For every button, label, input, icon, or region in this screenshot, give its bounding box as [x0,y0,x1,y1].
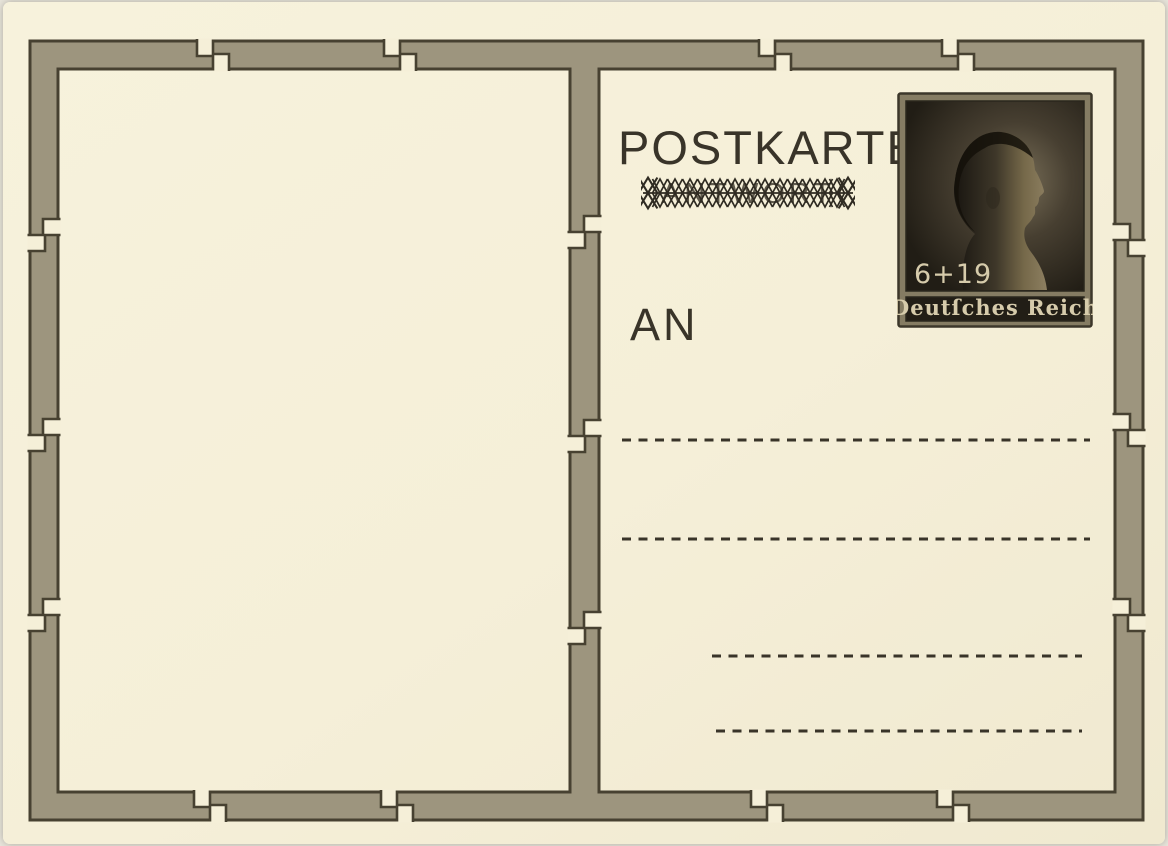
address-prefix-label: AN [630,299,699,351]
postcard-title: POSTKARTE [618,126,920,170]
scanned-postcard-page: POSTKARTE ANTWORT AN [0,0,1168,846]
postage-stamp: 6+19 Deutſches Reich [897,92,1093,328]
reply-overprint: ANTWORT [641,171,855,215]
address-lines [622,440,1090,731]
stamp-value: 6+19 [914,259,992,290]
stamp-country: Deutſches Reich [897,295,1093,320]
obliteration-pattern [641,171,855,215]
